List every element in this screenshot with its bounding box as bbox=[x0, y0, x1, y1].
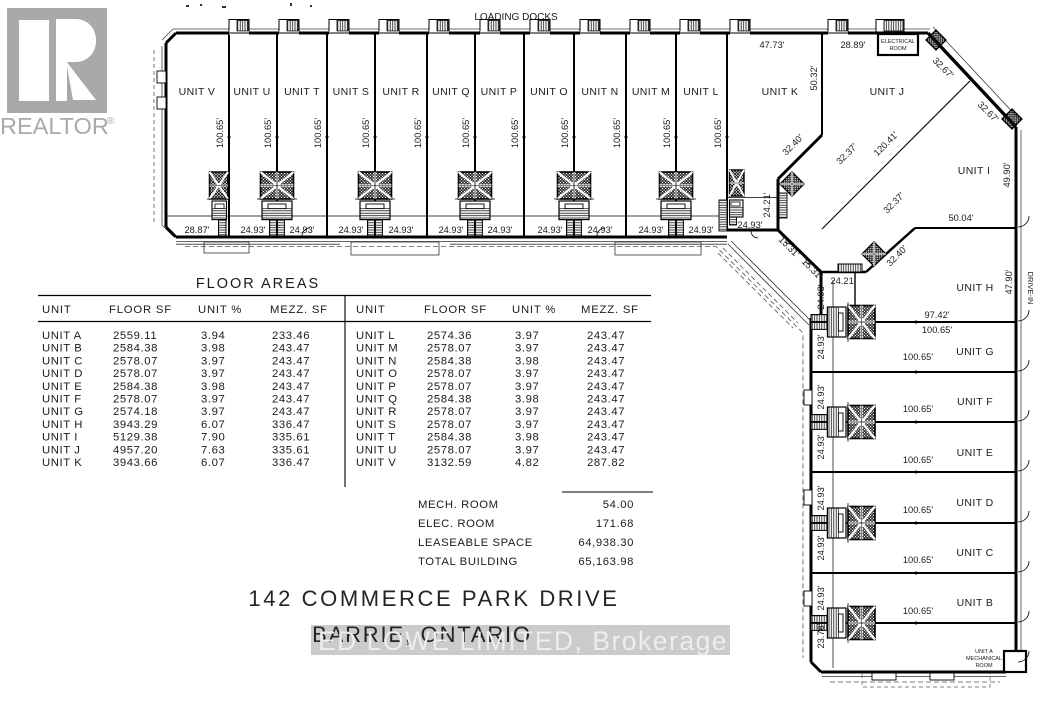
svg-text:UNIT U: UNIT U bbox=[356, 444, 397, 456]
svg-text:7.90: 7.90 bbox=[201, 432, 225, 444]
svg-text:FLOOR SF: FLOOR SF bbox=[109, 304, 172, 316]
svg-text:3.97: 3.97 bbox=[201, 406, 225, 418]
svg-text:3.98: 3.98 bbox=[201, 381, 225, 393]
svg-text:UNIT N: UNIT N bbox=[356, 355, 397, 367]
svg-text:FLOOR SF: FLOOR SF bbox=[424, 304, 487, 316]
svg-text:ED LOWE LIMITED, Brokerage: ED LOWE LIMITED, Brokerage bbox=[318, 626, 728, 656]
svg-text:97.42': 97.42' bbox=[924, 310, 949, 320]
svg-text:REALTOR: REALTOR bbox=[0, 113, 109, 139]
svg-text:3.98: 3.98 bbox=[515, 394, 539, 406]
svg-text:7.63: 7.63 bbox=[201, 444, 225, 456]
svg-text:28.89': 28.89' bbox=[840, 40, 865, 50]
svg-text:24.93': 24.93' bbox=[816, 485, 826, 510]
svg-text:100.65': 100.65' bbox=[903, 352, 933, 362]
svg-text:UNIT S: UNIT S bbox=[356, 419, 396, 431]
svg-text:2578.07: 2578.07 bbox=[427, 406, 472, 418]
svg-text:24.21': 24.21' bbox=[762, 192, 772, 217]
svg-text:6.07: 6.07 bbox=[201, 457, 225, 469]
svg-text:243.47: 243.47 bbox=[272, 394, 310, 406]
svg-text:24.93': 24.93' bbox=[816, 535, 826, 560]
svg-text:2584.38: 2584.38 bbox=[427, 394, 472, 406]
svg-text:100.65': 100.65' bbox=[313, 118, 323, 148]
svg-text:UNIT G: UNIT G bbox=[42, 406, 84, 418]
svg-text:UNIT N: UNIT N bbox=[581, 86, 618, 98]
svg-text:4.82: 4.82 bbox=[515, 457, 539, 469]
svg-text:LOADING DOCKS: LOADING DOCKS bbox=[474, 12, 558, 23]
svg-text:MEZZ. SF: MEZZ. SF bbox=[270, 304, 328, 316]
svg-text:50.32': 50.32' bbox=[809, 65, 819, 90]
svg-text:5129.38: 5129.38 bbox=[113, 432, 158, 444]
svg-text:243.47: 243.47 bbox=[587, 355, 625, 367]
svg-text:2584.38: 2584.38 bbox=[427, 355, 472, 367]
svg-text:47.73': 47.73' bbox=[759, 40, 784, 50]
svg-text:2578.07: 2578.07 bbox=[427, 368, 472, 380]
svg-text:287.82: 287.82 bbox=[587, 457, 625, 469]
svg-text:UNIT V: UNIT V bbox=[356, 457, 396, 469]
svg-text:3.98: 3.98 bbox=[515, 432, 539, 444]
svg-text:335.61: 335.61 bbox=[272, 444, 310, 456]
svg-text:64,938.30: 64,938.30 bbox=[578, 537, 634, 549]
svg-text:UNIT C: UNIT C bbox=[956, 547, 993, 559]
svg-text:49.90': 49.90' bbox=[1002, 162, 1012, 187]
svg-text:2578.07: 2578.07 bbox=[113, 394, 158, 406]
svg-text:100.65': 100.65' bbox=[903, 555, 933, 565]
svg-text:UNIT L: UNIT L bbox=[356, 330, 395, 342]
svg-text:UNIT I: UNIT I bbox=[958, 165, 991, 177]
svg-text:2578.07: 2578.07 bbox=[113, 368, 158, 380]
svg-text:65,163.98: 65,163.98 bbox=[578, 556, 634, 568]
svg-text:3.97: 3.97 bbox=[515, 406, 539, 418]
svg-text:UNIT %: UNIT % bbox=[198, 304, 242, 316]
svg-text:UNIT A: UNIT A bbox=[42, 330, 82, 342]
svg-text:UNIT K: UNIT K bbox=[762, 86, 799, 98]
svg-text:2578.07: 2578.07 bbox=[427, 419, 472, 431]
svg-text:243.47: 243.47 bbox=[587, 394, 625, 406]
svg-text:23.76': 23.76' bbox=[816, 623, 826, 648]
svg-text:UNIT J: UNIT J bbox=[42, 444, 81, 456]
svg-text:UNIT R: UNIT R bbox=[356, 406, 397, 418]
svg-text:336.47: 336.47 bbox=[272, 419, 310, 431]
svg-text:32.37': 32.37' bbox=[881, 190, 906, 215]
svg-text:UNIT E: UNIT E bbox=[42, 381, 82, 393]
svg-text:100.65': 100.65' bbox=[361, 118, 371, 148]
svg-text:24.93': 24.93' bbox=[816, 334, 826, 359]
svg-text:UNIT D: UNIT D bbox=[956, 497, 993, 509]
svg-text:100.65': 100.65' bbox=[903, 606, 933, 616]
svg-text:233.46: 233.46 bbox=[272, 330, 310, 342]
svg-text:336.47: 336.47 bbox=[272, 457, 310, 469]
svg-text:TOTAL BUILDING: TOTAL BUILDING bbox=[418, 556, 518, 568]
svg-text:24.93': 24.93' bbox=[688, 225, 713, 235]
svg-text:15.31': 15.31' bbox=[800, 256, 825, 281]
svg-text:FLOOR AREAS: FLOOR AREAS bbox=[196, 276, 320, 292]
svg-text:2578.07: 2578.07 bbox=[113, 355, 158, 367]
svg-text:243.47: 243.47 bbox=[272, 381, 310, 393]
svg-text:UNIT H: UNIT H bbox=[956, 282, 993, 294]
svg-text:24.93': 24.93' bbox=[737, 220, 762, 230]
svg-text:UNIT U: UNIT U bbox=[233, 86, 270, 98]
svg-text:UNIT M: UNIT M bbox=[632, 86, 670, 98]
svg-text:2584.38: 2584.38 bbox=[113, 381, 158, 393]
svg-text:UNIT R: UNIT R bbox=[382, 86, 419, 98]
svg-text:2574.36: 2574.36 bbox=[427, 330, 472, 342]
svg-text:3.98: 3.98 bbox=[515, 355, 539, 367]
svg-text:243.47: 243.47 bbox=[272, 355, 310, 367]
svg-text:50.04': 50.04' bbox=[948, 213, 973, 223]
svg-text:3.98: 3.98 bbox=[201, 343, 225, 355]
svg-text:MECH. ROOM: MECH. ROOM bbox=[418, 499, 499, 511]
svg-text:24.93': 24.93' bbox=[587, 225, 612, 235]
svg-text:2584.38: 2584.38 bbox=[113, 343, 158, 355]
svg-text:100.65': 100.65' bbox=[263, 118, 273, 148]
svg-text:4957.20: 4957.20 bbox=[113, 444, 158, 456]
svg-text:243.47: 243.47 bbox=[587, 419, 625, 431]
svg-text:24.93': 24.93' bbox=[289, 225, 314, 235]
svg-text:UNIT: UNIT bbox=[42, 304, 72, 316]
svg-text:2584.38: 2584.38 bbox=[427, 432, 472, 444]
svg-text:3.97: 3.97 bbox=[515, 343, 539, 355]
svg-text:3.97: 3.97 bbox=[201, 394, 225, 406]
svg-text:24.93': 24.93' bbox=[816, 585, 826, 610]
svg-text:MEZZ. SF: MEZZ. SF bbox=[581, 304, 639, 316]
svg-text:UNIT F: UNIT F bbox=[957, 396, 993, 408]
svg-text:UNIT %: UNIT % bbox=[512, 304, 556, 316]
svg-text:100.65': 100.65' bbox=[510, 118, 520, 148]
svg-text:171.68: 171.68 bbox=[596, 518, 634, 530]
svg-text:100.65': 100.65' bbox=[903, 505, 933, 515]
svg-text:24.21': 24.21' bbox=[830, 276, 855, 286]
svg-text:100.65': 100.65' bbox=[461, 118, 471, 148]
svg-text:24.93': 24.93' bbox=[338, 225, 363, 235]
svg-text:UNIT E: UNIT E bbox=[957, 447, 994, 459]
svg-text:3.97: 3.97 bbox=[515, 444, 539, 456]
svg-text:3132.59: 3132.59 bbox=[427, 457, 472, 469]
svg-text:UNIT G: UNIT G bbox=[956, 346, 994, 358]
svg-text:100.65': 100.65' bbox=[713, 118, 723, 148]
svg-text:243.47: 243.47 bbox=[272, 343, 310, 355]
svg-text:24.93': 24.93' bbox=[537, 225, 562, 235]
svg-text:24.93': 24.93' bbox=[816, 384, 826, 409]
svg-text:UNIT P: UNIT P bbox=[481, 86, 518, 98]
svg-text:UNIT B: UNIT B bbox=[42, 343, 82, 355]
svg-text:UNIT O: UNIT O bbox=[356, 368, 398, 380]
svg-text:24.93': 24.93' bbox=[487, 225, 512, 235]
svg-text:UNIT S: UNIT S bbox=[333, 86, 370, 98]
svg-text:100.65': 100.65' bbox=[922, 325, 952, 335]
svg-text:32.67': 32.67' bbox=[976, 99, 1001, 124]
svg-text:3.97: 3.97 bbox=[515, 381, 539, 393]
svg-text:3.97: 3.97 bbox=[201, 355, 225, 367]
svg-text:47.90': 47.90' bbox=[1004, 269, 1014, 294]
svg-text:3943.66: 3943.66 bbox=[113, 457, 158, 469]
svg-text:28.87': 28.87' bbox=[184, 225, 209, 235]
svg-text:UNIT T: UNIT T bbox=[284, 86, 320, 98]
svg-text:32.40': 32.40' bbox=[884, 243, 909, 268]
svg-text:UNIT P: UNIT P bbox=[356, 381, 396, 393]
svg-text:6.07: 6.07 bbox=[201, 419, 225, 431]
svg-text:243.47: 243.47 bbox=[587, 444, 625, 456]
svg-text:UNIT L: UNIT L bbox=[683, 86, 718, 98]
svg-text:UNIT C: UNIT C bbox=[42, 355, 83, 367]
svg-text:UNIT T: UNIT T bbox=[356, 432, 396, 444]
svg-text:3.97: 3.97 bbox=[515, 368, 539, 380]
svg-text:UNIT V: UNIT V bbox=[179, 86, 216, 98]
svg-text:3.97: 3.97 bbox=[201, 368, 225, 380]
svg-text:24.93': 24.93' bbox=[816, 284, 826, 309]
svg-text:UNIT Q: UNIT Q bbox=[356, 394, 398, 406]
svg-text:243.47: 243.47 bbox=[587, 368, 625, 380]
svg-text:MECHANICAL: MECHANICAL bbox=[966, 656, 1002, 662]
svg-text:2578.07: 2578.07 bbox=[427, 381, 472, 393]
svg-text:243.47: 243.47 bbox=[587, 343, 625, 355]
svg-text:243.47: 243.47 bbox=[587, 330, 625, 342]
svg-text:243.47: 243.47 bbox=[272, 406, 310, 418]
svg-text:UNIT Q: UNIT Q bbox=[432, 86, 470, 98]
svg-text:UNIT M: UNIT M bbox=[356, 343, 398, 355]
svg-text:100.65': 100.65' bbox=[662, 118, 672, 148]
svg-text:142 COMMERCE PARK DRIVE: 142 COMMERCE PARK DRIVE bbox=[248, 586, 619, 611]
svg-text:3943.29: 3943.29 bbox=[113, 419, 158, 431]
svg-text:ROOM: ROOM bbox=[975, 663, 993, 669]
svg-text:UNIT B: UNIT B bbox=[957, 597, 994, 609]
svg-text:ELEC. ROOM: ELEC. ROOM bbox=[418, 518, 495, 530]
svg-text:100.65': 100.65' bbox=[903, 455, 933, 465]
svg-text:24.93': 24.93' bbox=[240, 225, 265, 235]
svg-text:UNIT J: UNIT J bbox=[870, 86, 905, 98]
svg-text:®: ® bbox=[107, 116, 115, 127]
svg-text:3.94: 3.94 bbox=[201, 330, 225, 342]
svg-text:UNIT D: UNIT D bbox=[42, 368, 83, 380]
svg-text:UNIT O: UNIT O bbox=[530, 86, 568, 98]
svg-text:2559.11: 2559.11 bbox=[113, 330, 157, 342]
svg-text:32.37': 32.37' bbox=[834, 141, 859, 166]
svg-text:24.93': 24.93' bbox=[638, 225, 663, 235]
svg-text:3.97: 3.97 bbox=[515, 330, 539, 342]
svg-text:100.65': 100.65' bbox=[413, 118, 423, 148]
svg-text:24.93': 24.93' bbox=[816, 434, 826, 459]
svg-text:2578.07: 2578.07 bbox=[427, 343, 472, 355]
svg-text:UNIT K: UNIT K bbox=[42, 457, 82, 469]
svg-text:243.47: 243.47 bbox=[587, 432, 625, 444]
svg-text:ROOM: ROOM bbox=[889, 46, 907, 52]
svg-text:3.97: 3.97 bbox=[515, 419, 539, 431]
svg-text:100.65': 100.65' bbox=[612, 118, 622, 148]
svg-text:100.65': 100.65' bbox=[560, 118, 570, 148]
svg-text:2574.18: 2574.18 bbox=[113, 406, 158, 418]
svg-text:UNIT H: UNIT H bbox=[42, 419, 83, 431]
svg-text:100.65': 100.65' bbox=[903, 404, 933, 414]
svg-text:2578.07: 2578.07 bbox=[427, 444, 472, 456]
svg-text:LEASEABLE SPACE: LEASEABLE SPACE bbox=[418, 537, 533, 549]
svg-text:243.47: 243.47 bbox=[587, 406, 625, 418]
svg-text:120.41': 120.41' bbox=[872, 130, 901, 159]
svg-text:24.93': 24.93' bbox=[438, 225, 463, 235]
svg-text:DRIVE-IN: DRIVE-IN bbox=[1026, 272, 1035, 305]
svg-text:54.00: 54.00 bbox=[603, 499, 634, 511]
svg-text:UNIT I: UNIT I bbox=[42, 432, 78, 444]
svg-text:15.31': 15.31' bbox=[777, 234, 802, 259]
svg-text:24.93': 24.93' bbox=[388, 225, 413, 235]
svg-text:243.47: 243.47 bbox=[272, 368, 310, 380]
svg-text:UNIT A: UNIT A bbox=[975, 649, 993, 655]
svg-text:243.47: 243.47 bbox=[587, 381, 625, 393]
svg-text:UNIT F: UNIT F bbox=[42, 394, 82, 406]
svg-text:UNIT: UNIT bbox=[356, 304, 386, 316]
svg-text:100.65': 100.65' bbox=[215, 118, 225, 148]
svg-text:ELECTRICAL: ELECTRICAL bbox=[881, 39, 915, 45]
svg-text:335.61: 335.61 bbox=[272, 432, 310, 444]
